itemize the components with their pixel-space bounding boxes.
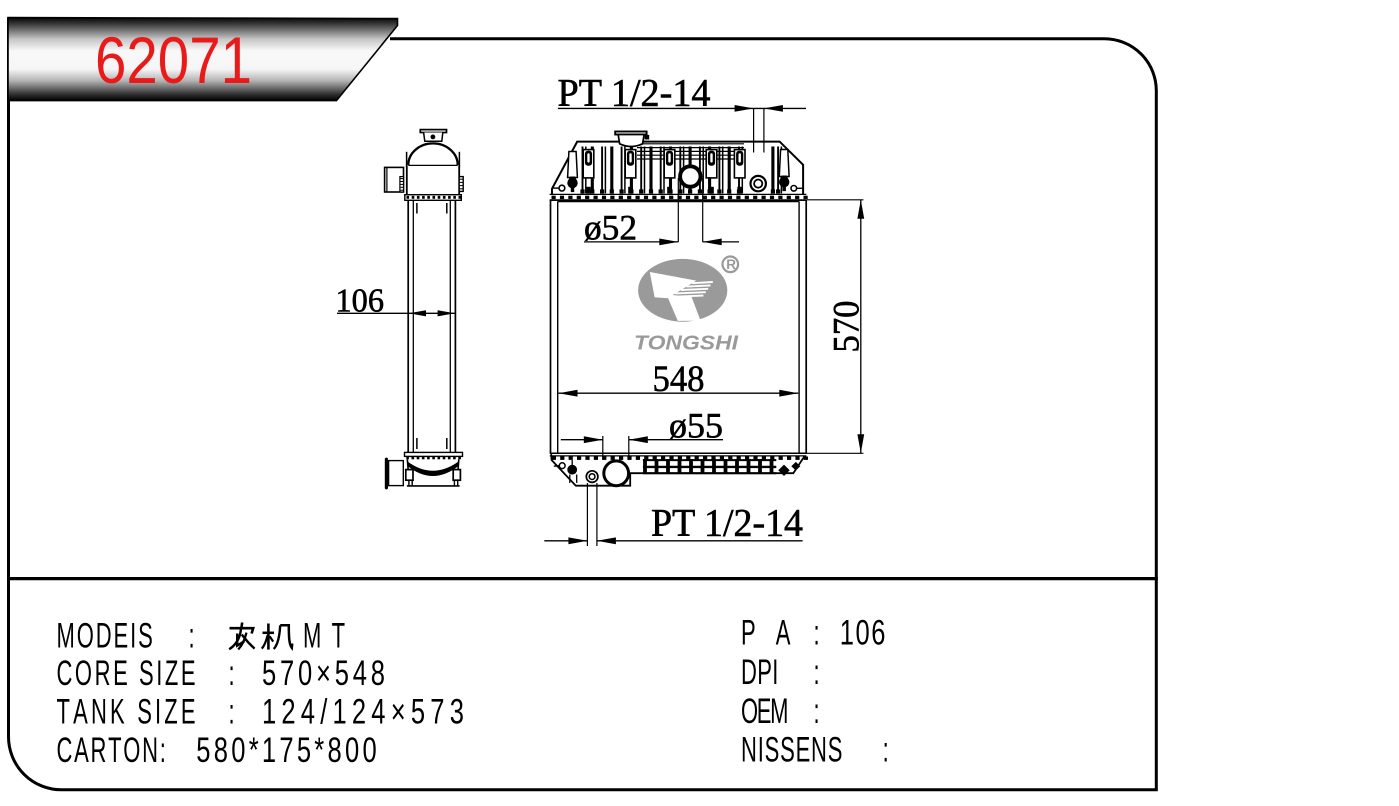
svg-text:62071: 62071 [95, 23, 252, 97]
svg-text::: : [814, 613, 820, 653]
svg-text:S: S [138, 616, 153, 656]
svg-text:7: 7 [430, 691, 444, 731]
svg-text:106: 106 [336, 283, 385, 320]
svg-text:I: I [155, 692, 161, 732]
svg-text:Z: Z [165, 654, 178, 694]
svg-text:0: 0 [298, 653, 312, 693]
svg-text:N: N [741, 730, 757, 770]
svg-text::: : [229, 654, 235, 694]
svg-text:4: 4 [301, 691, 315, 731]
svg-text:/: / [320, 691, 327, 731]
svg-text:E: E [757, 692, 772, 732]
svg-text:K: K [110, 692, 125, 732]
svg-text:P: P [757, 653, 772, 693]
svg-text:1: 1 [840, 612, 854, 652]
svg-text:Z: Z [164, 692, 177, 732]
svg-text:×: × [316, 653, 331, 693]
svg-text:O: O [123, 731, 140, 771]
svg-text:N: N [811, 730, 827, 770]
svg-text:I: I [758, 730, 764, 770]
svg-text:6: 6 [871, 612, 885, 652]
svg-text:7: 7 [280, 653, 294, 693]
svg-text:C: C [57, 654, 73, 694]
svg-text:5: 5 [335, 653, 349, 693]
svg-text:R: R [726, 257, 736, 272]
svg-text:570: 570 [827, 301, 868, 353]
svg-text:2: 2 [352, 691, 366, 731]
svg-text:0: 0 [363, 730, 377, 770]
svg-text:O: O [741, 692, 758, 732]
svg-text:2: 2 [281, 691, 295, 731]
svg-text::: : [814, 692, 820, 732]
svg-text:A: A [73, 692, 88, 732]
svg-text:A: A [74, 731, 89, 771]
svg-text:O: O [77, 616, 94, 656]
svg-text:M: M [303, 616, 321, 656]
svg-text:I: I [130, 616, 136, 656]
svg-text:S: S [780, 730, 795, 770]
svg-text::: : [814, 653, 820, 693]
svg-text:I: I [772, 653, 778, 693]
svg-text:0: 0 [231, 730, 245, 770]
svg-text:1: 1 [333, 691, 347, 731]
svg-text:T: T [57, 692, 70, 732]
svg-text:E: E [181, 692, 196, 732]
svg-text:S: S [139, 654, 154, 694]
svg-text:C: C [57, 731, 73, 771]
svg-text:1: 1 [262, 730, 276, 770]
svg-text:*: * [314, 730, 324, 770]
svg-text:7: 7 [279, 730, 293, 770]
svg-text:8: 8 [328, 730, 342, 770]
svg-text:A: A [776, 613, 791, 653]
svg-text:5: 5 [411, 691, 425, 731]
svg-text:5: 5 [196, 730, 210, 770]
svg-text:5: 5 [262, 653, 276, 693]
svg-text:M: M [770, 692, 788, 732]
svg-text:TONGSHI: TONGSHI [634, 332, 739, 355]
svg-text::: : [189, 616, 195, 656]
svg-text:N: N [91, 692, 107, 732]
svg-text:D: D [741, 653, 757, 693]
svg-text:E: E [113, 654, 128, 694]
svg-text:M: M [57, 616, 75, 656]
svg-text:S: S [765, 730, 780, 770]
svg-text:PT 1/2-14: PT 1/2-14 [651, 502, 803, 545]
svg-text:I: I [156, 654, 162, 694]
svg-text:E: E [114, 616, 129, 656]
svg-text:S: S [137, 692, 152, 732]
svg-text:R: R [95, 654, 111, 694]
svg-text:E: E [181, 654, 196, 694]
svg-text::: : [229, 692, 235, 732]
svg-text:D: D [96, 616, 112, 656]
svg-text:8: 8 [214, 730, 228, 770]
svg-text::: : [883, 730, 889, 770]
svg-text:1: 1 [262, 691, 276, 731]
svg-text:S: S [828, 730, 843, 770]
svg-text:4: 4 [371, 691, 385, 731]
svg-text:P: P [741, 613, 756, 653]
svg-text:E: E [796, 730, 811, 770]
svg-text:0: 0 [345, 730, 359, 770]
svg-text:*: * [249, 730, 259, 770]
svg-text:3: 3 [450, 691, 464, 731]
svg-text:5: 5 [297, 730, 311, 770]
svg-text:0: 0 [856, 612, 870, 652]
svg-text:O: O [75, 654, 92, 694]
svg-text:T: T [332, 616, 345, 656]
svg-text:4: 4 [353, 653, 367, 693]
svg-text:×: × [391, 691, 406, 731]
svg-text::: : [160, 731, 166, 771]
svg-text:8: 8 [371, 653, 385, 693]
svg-text:T: T [108, 731, 121, 771]
svg-text:N: N [142, 731, 158, 771]
svg-text:R: R [91, 731, 107, 771]
